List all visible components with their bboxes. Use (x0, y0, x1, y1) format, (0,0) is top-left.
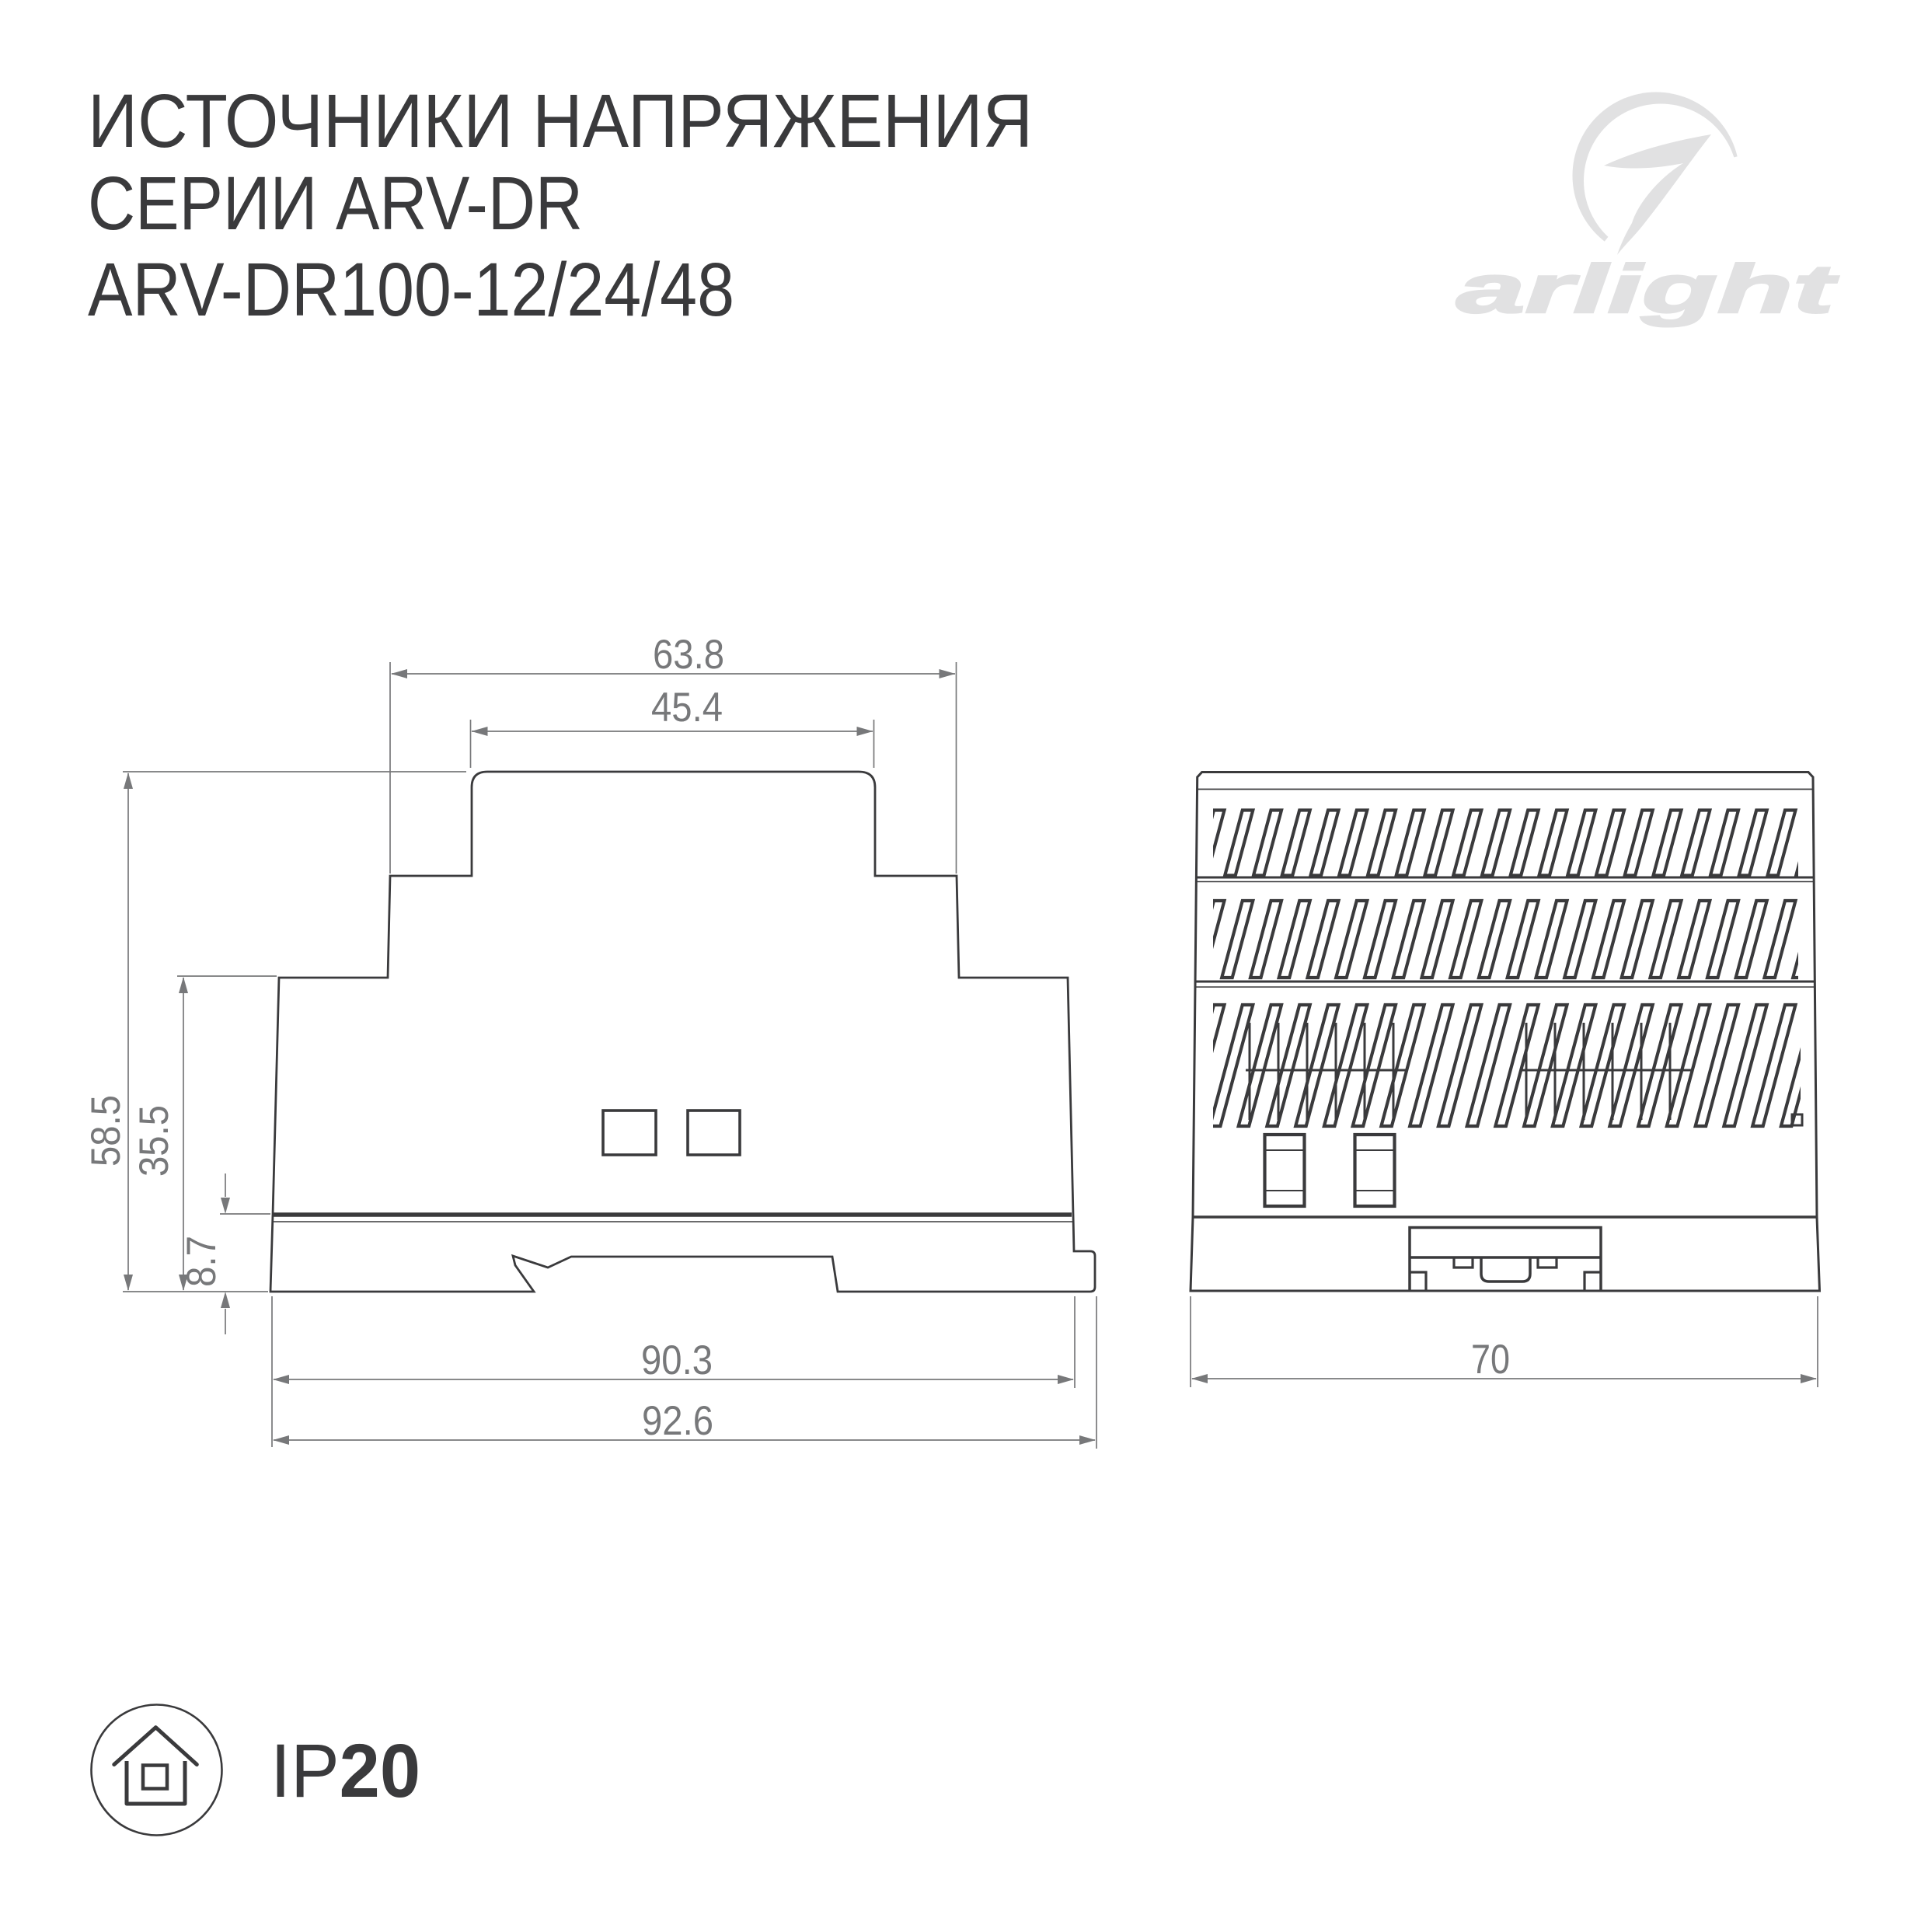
svg-text:arlight: arlight (1456, 250, 1839, 327)
svg-text:35.5: 35.5 (131, 1105, 177, 1177)
svg-text:92.6: 92.6 (642, 1398, 713, 1444)
svg-text:8.7: 8.7 (179, 1236, 225, 1287)
svg-text:58.5: 58.5 (83, 1095, 129, 1167)
svg-text:70: 70 (1471, 1337, 1510, 1383)
svg-text:45.4: 45.4 (651, 685, 723, 731)
svg-text:ИСТОЧНИКИ НАПРЯЖЕНИЯ: ИСТОЧНИКИ НАПРЯЖЕНИЯ (88, 78, 1033, 163)
svg-text:ARV-DR100-12/24/48: ARV-DR100-12/24/48 (88, 247, 734, 332)
svg-text:СЕРИИ ARV-DR: СЕРИИ ARV-DR (88, 161, 583, 246)
svg-text:90.3: 90.3 (641, 1337, 713, 1383)
svg-text:63.8: 63.8 (653, 632, 724, 678)
svg-text:IP20: IP20 (270, 1728, 420, 1813)
